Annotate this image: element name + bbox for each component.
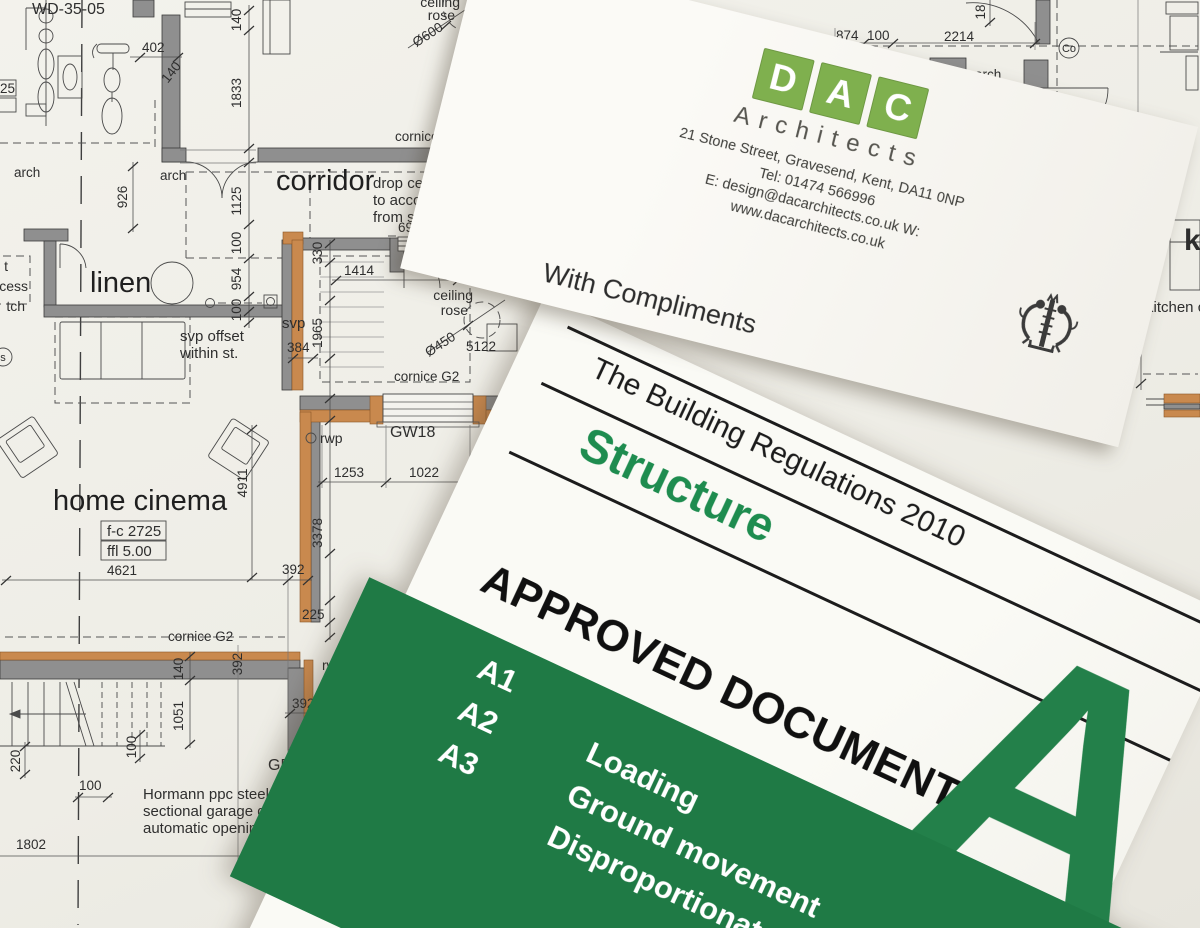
ceiling-rose-2b: rose (441, 302, 468, 318)
dim-3378: 3378 (310, 518, 325, 548)
dim-1253: 1253 (334, 465, 364, 480)
arch-label-a: arch (14, 165, 40, 180)
dim-1414: 1414 (344, 263, 375, 278)
lions-crest-icon (1006, 285, 1087, 368)
dim-25: 25 (0, 81, 15, 96)
armchair-left (0, 416, 59, 479)
dim-dia450: Ø450 (422, 329, 458, 360)
dim-100f: 100 (79, 778, 102, 793)
loft-partial-2: cess (0, 278, 28, 294)
dim-4621: 4621 (107, 563, 137, 578)
gym-equipment (26, 0, 129, 134)
dim-100b: 100 (229, 299, 244, 322)
dim-225: 225 (302, 607, 325, 622)
garage-note-3: automatic opening (143, 820, 266, 837)
dim-100e: 100 (124, 736, 139, 759)
dim-402: 402 (142, 40, 165, 55)
gw18-label: GW18 (390, 424, 435, 441)
dim-dia600: Ø600 (410, 19, 446, 50)
dim-954: 954 (229, 267, 244, 290)
ceiling-rose-2a: ceiling (433, 287, 473, 303)
cornice-g2-a: cornice G2 (394, 369, 459, 384)
co-symbol: Co (1062, 43, 1076, 55)
dim-5122: 5122 (466, 339, 496, 354)
arch-label-b: arch (160, 168, 186, 183)
svp-note-2: within st. (179, 345, 238, 362)
dim-18: 18 (973, 4, 988, 19)
dim-1802: 1802 (16, 837, 46, 852)
logo-square-a: A (809, 62, 872, 125)
dim-100c: 100 (867, 28, 890, 43)
logo-square-c: C (866, 76, 929, 139)
dim-1051: 1051 (171, 701, 186, 731)
dim-220: 220 (8, 750, 23, 773)
section-codes: A1 A2 A3 (431, 646, 525, 788)
svp-label: svp (282, 315, 305, 332)
dim-140b: 140 (171, 658, 186, 681)
dim-100a: 100 (229, 232, 244, 255)
dim-1022: 1022 (409, 465, 439, 480)
loft-partial-1: t (4, 258, 8, 274)
dim-392a: 392 (282, 562, 305, 577)
fc-level-label: f-c 2725 (107, 523, 161, 540)
rwp-label-a: rwp (320, 430, 343, 446)
dim-1125: 1125 (229, 186, 244, 215)
dim-392c: 392 (230, 653, 245, 676)
dim-2214: 2214 (944, 29, 975, 44)
ffl-level-label: ffl 5.00 (107, 543, 152, 560)
loft-partial-3: tch (6, 298, 25, 314)
dim-4911: 4911 (235, 468, 250, 497)
logo-square-d: D (752, 48, 815, 111)
dim-1833: 1833 (229, 78, 244, 108)
cornice-g2-b: cornice G2 (168, 629, 233, 644)
home-cinema-label: home cinema (53, 485, 228, 517)
svp-note-1: svp offset (180, 328, 245, 345)
corridor-label: corridor (276, 165, 375, 197)
s-symbol: s (0, 352, 6, 364)
kitchen-partial-label: k (1184, 224, 1200, 257)
drawing-ref-label: WD-35-05 (32, 1, 105, 18)
dim-330: 330 (310, 242, 325, 265)
linen-label: linen (90, 267, 151, 299)
dim-926: 926 (115, 186, 130, 209)
dim-140-top: 140 (229, 9, 244, 32)
photo-scene: WD-35-05 corridor linen home cinema f-c … (0, 0, 1200, 928)
window-gw18 (377, 394, 479, 427)
dim-1965: 1965 (310, 318, 325, 348)
dim-384: 384 (287, 340, 310, 355)
garage-note-1: Hormann ppc steel (143, 786, 269, 803)
ceiling-rose-1b: rose (428, 7, 455, 23)
